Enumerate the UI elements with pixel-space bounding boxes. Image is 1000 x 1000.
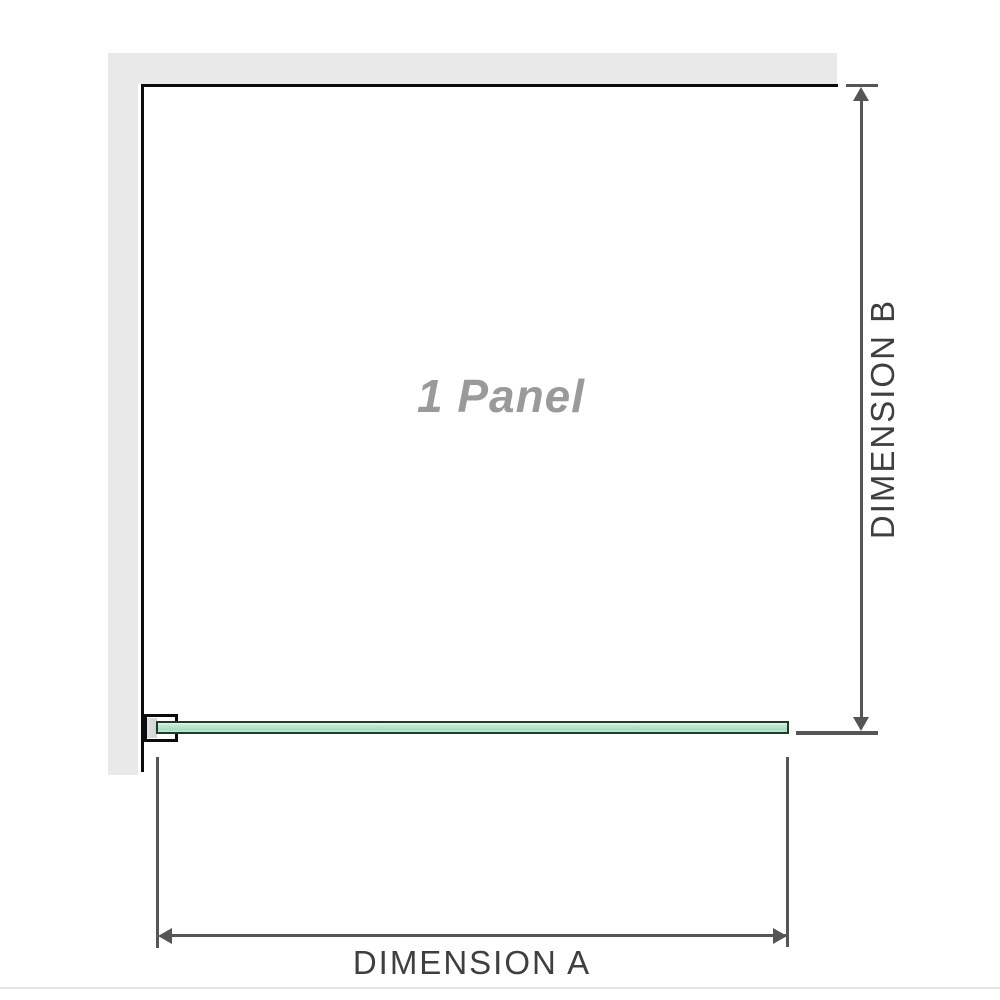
arrow-left-icon: [158, 928, 172, 944]
page-divider: [0, 987, 1000, 989]
dimension-b-label: DIMENSION B: [864, 299, 902, 539]
arrow-down-icon: [853, 717, 869, 731]
wall-top: [108, 53, 837, 84]
enclosure-outline: [141, 84, 838, 772]
arrow-up-icon: [853, 87, 869, 101]
panel-count-label: 1 Panel: [417, 369, 585, 423]
dimension-a-label: DIMENSION A: [353, 944, 591, 982]
arrow-right-icon: [773, 928, 787, 944]
dimension-a-right-extent: [786, 757, 789, 947]
dimension-a-left-extent: [156, 757, 159, 948]
wall-left: [108, 53, 138, 775]
dimension-b-bottom-tick: [796, 731, 878, 735]
glass-panel: [156, 721, 789, 734]
dimension-b-line: [860, 98, 863, 720]
dimension-a-line: [166, 934, 786, 937]
diagram-canvas: 1 Panel DIMENSION B DIMENSION A: [0, 0, 1000, 1000]
